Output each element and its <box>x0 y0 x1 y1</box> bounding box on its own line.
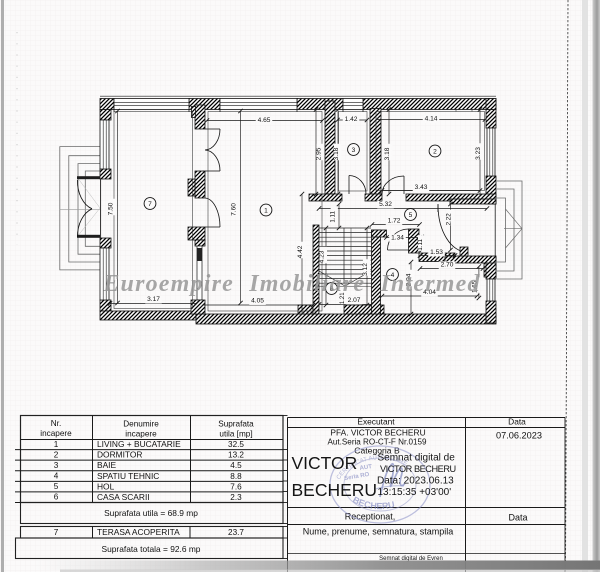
svg-text:1.42: 1.42 <box>345 116 358 123</box>
svg-text:1.53: 1.53 <box>430 249 443 256</box>
svg-text:Nume, prenume, semnatura, stam: Nume, prenume, semnatura, stampila <box>303 527 454 537</box>
svg-text:32.5: 32.5 <box>228 440 244 449</box>
svg-text:13:15:35 +03'00': 13:15:35 +03'00' <box>378 487 452 498</box>
svg-text:7: 7 <box>148 201 152 208</box>
svg-text:Denumire: Denumire <box>123 420 159 429</box>
svg-text:Suprafata utila = 68.9 mp: Suprafata utila = 68.9 mp <box>104 508 198 518</box>
svg-text:07.06.2023: 07.06.2023 <box>496 431 542 441</box>
svg-text:utila [mp]: utila [mp] <box>219 430 252 439</box>
svg-text:6: 6 <box>54 493 59 502</box>
svg-text:1.34: 1.34 <box>391 235 404 242</box>
svg-text:4: 4 <box>54 472 59 481</box>
svg-text:Executant: Executant <box>357 417 395 427</box>
svg-text:2.70: 2.70 <box>441 262 454 269</box>
svg-text:incapere: incapere <box>125 430 157 439</box>
svg-text:3.43: 3.43 <box>415 184 428 191</box>
svg-text:2.95: 2.95 <box>316 147 323 160</box>
svg-text:3.18: 3.18 <box>384 147 391 160</box>
svg-text:13.2: 13.2 <box>228 451 244 460</box>
svg-text:23.7: 23.7 <box>228 528 244 537</box>
svg-text:Suprafata: Suprafata <box>218 420 254 429</box>
svg-text:4.5: 4.5 <box>230 461 242 470</box>
svg-text:5.32: 5.32 <box>379 201 392 208</box>
svg-text:1: 1 <box>54 440 59 449</box>
svg-text:4.65: 4.65 <box>258 117 271 124</box>
svg-text:7.6: 7.6 <box>230 482 242 491</box>
svg-text:incapere: incapere <box>40 429 72 438</box>
svg-text:3: 3 <box>352 147 356 154</box>
svg-text:5: 5 <box>54 482 59 491</box>
svg-text:4.42: 4.42 <box>297 245 304 258</box>
svg-text:1.72: 1.72 <box>388 218 401 225</box>
svg-text:2.22: 2.22 <box>446 213 453 226</box>
svg-text:2.07: 2.07 <box>348 297 361 304</box>
svg-text:2.3: 2.3 <box>230 493 242 502</box>
svg-text:3.17: 3.17 <box>147 296 160 303</box>
svg-text:PFA. VICTOR BECHERU: PFA. VICTOR BECHERU <box>330 428 425 438</box>
svg-text:DORMITOR: DORMITOR <box>97 450 142 460</box>
svg-text:CASA SCARII: CASA SCARII <box>97 492 150 502</box>
svg-text:Data: Data <box>508 417 526 427</box>
svg-text:2: 2 <box>433 148 437 155</box>
svg-text:BAIE: BAIE <box>97 460 116 470</box>
svg-text:TERASA ACOPERITA: TERASA ACOPERITA <box>97 527 180 537</box>
svg-text:3.23: 3.23 <box>475 147 482 160</box>
svg-text:3.18: 3.18 <box>333 147 340 160</box>
svg-text:Euroempire Imobiliare Intermed: Euroempire Imobiliare Intermed <box>102 271 480 297</box>
svg-text:4.14: 4.14 <box>425 116 438 123</box>
svg-text:SPATIU TEHNIC: SPATIU TEHNIC <box>97 471 159 481</box>
svg-text:Suprafata totala = 92.6 mp: Suprafata totala = 92.6 mp <box>102 544 201 554</box>
svg-text:1.11: 1.11 <box>330 211 337 223</box>
svg-text:7: 7 <box>54 528 59 537</box>
svg-text:Data: Data <box>508 513 527 523</box>
svg-text:BECHERU: BECHERU <box>292 480 378 500</box>
svg-text:7.50: 7.50 <box>108 202 115 215</box>
svg-text:4.23: 4.23 <box>319 250 326 263</box>
svg-text:Data: 2023.06.13: Data: 2023.06.13 <box>377 476 454 487</box>
svg-text:4.05: 4.05 <box>251 298 264 305</box>
svg-text:1: 1 <box>264 207 268 214</box>
svg-text:3: 3 <box>54 461 59 470</box>
svg-text:7.60: 7.60 <box>231 203 238 216</box>
svg-text:VICTOR: VICTOR <box>292 453 358 473</box>
svg-text:Nr.: Nr. <box>51 419 61 428</box>
svg-text:1.11: 1.11 <box>417 239 424 251</box>
svg-text:HOL: HOL <box>97 481 115 491</box>
svg-text:2: 2 <box>54 450 59 459</box>
svg-text:VICTOR BECHERU: VICTOR BECHERU <box>380 464 456 474</box>
svg-text:5: 5 <box>409 212 413 219</box>
svg-text:8.8: 8.8 <box>230 472 242 481</box>
svg-text:Semnat digital de: Semnat digital de <box>378 453 456 464</box>
svg-text:LIVING + BUCATARIE: LIVING + BUCATARIE <box>97 439 181 449</box>
